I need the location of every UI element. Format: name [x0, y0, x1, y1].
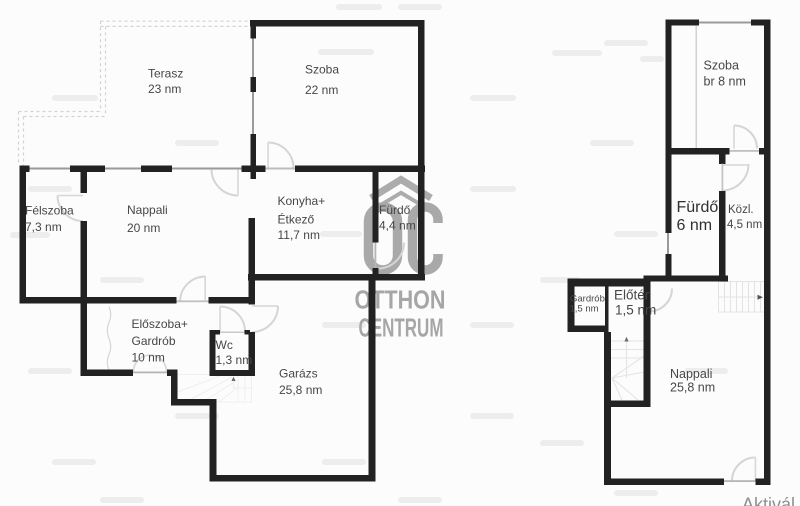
- svg-text:Előszoba+: Előszoba+: [132, 317, 188, 331]
- svg-text:Aktivál: Aktivál: [742, 495, 795, 506]
- svg-text:Nappali: Nappali: [670, 367, 712, 381]
- svg-text:Közl.: Közl.: [728, 204, 754, 216]
- svg-text:Előtér: Előtér: [614, 288, 650, 303]
- svg-text:22 nm: 22 nm: [305, 83, 338, 97]
- svg-text:Garázs: Garázs: [279, 367, 318, 381]
- svg-text:Terasz: Terasz: [148, 67, 183, 81]
- svg-text:10 nm: 10 nm: [132, 351, 165, 365]
- svg-text:Gardrób: Gardrób: [132, 334, 176, 348]
- svg-text:Étkező: Étkező: [278, 212, 315, 227]
- svg-text:23 nm: 23 nm: [148, 82, 181, 96]
- svg-text:1,3 nm: 1,3 nm: [216, 353, 253, 367]
- svg-text:1,5 nm: 1,5 nm: [570, 304, 599, 315]
- svg-text:Fürdő: Fürdő: [379, 203, 411, 217]
- svg-text:4,5 nm: 4,5 nm: [727, 219, 762, 231]
- svg-text:25,8 nm: 25,8 nm: [670, 381, 715, 395]
- svg-text:Félszoba: Félszoba: [25, 204, 74, 218]
- svg-text:20 nm: 20 nm: [127, 221, 160, 235]
- svg-text:Szoba: Szoba: [305, 63, 339, 77]
- svg-text:Nappali: Nappali: [127, 203, 168, 217]
- svg-text:6 nm: 6 nm: [677, 217, 713, 234]
- svg-text:Wc: Wc: [216, 338, 233, 352]
- svg-text:Fürdő: Fürdő: [677, 199, 719, 216]
- svg-text:11,7 nm: 11,7 nm: [278, 228, 320, 242]
- svg-text:OTTHON: OTTHON: [355, 285, 446, 315]
- svg-text:4,4 nm: 4,4 nm: [379, 219, 416, 233]
- svg-text:Szoba: Szoba: [704, 59, 739, 73]
- svg-text:br 8 nm: br 8 nm: [704, 75, 746, 89]
- svg-text:25,8 nm: 25,8 nm: [279, 383, 322, 397]
- svg-text:1,5 nm: 1,5 nm: [615, 303, 656, 318]
- svg-text:7,3 nm: 7,3 nm: [25, 220, 62, 234]
- svg-text:Konyha+: Konyha+: [278, 194, 326, 208]
